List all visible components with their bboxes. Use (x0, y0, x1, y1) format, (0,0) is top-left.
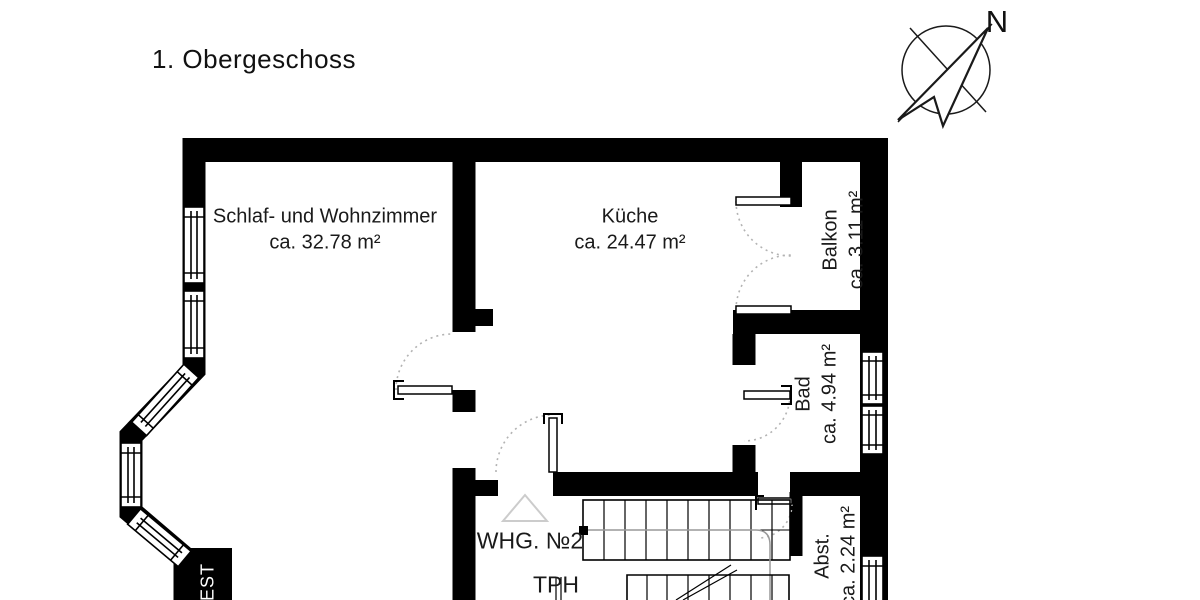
door-swing-icon (756, 496, 792, 538)
door-swing-icon (744, 386, 791, 441)
door-swing-icon (496, 414, 562, 472)
room-name: Abst. (811, 533, 833, 579)
stair-break-line (676, 565, 737, 600)
room-name: Bad (792, 376, 814, 412)
staircase (556, 500, 790, 600)
room-area: ca. 3.11 m² (844, 191, 870, 290)
window-icon (184, 207, 204, 283)
window-icon (862, 406, 883, 454)
entrance-triangle-icon (503, 495, 547, 521)
window-icon (132, 364, 199, 435)
room-area: ca. 32.78 m² (213, 230, 437, 256)
door-swing-icon (394, 334, 452, 399)
north-label: N (986, 4, 1008, 40)
window-icon (862, 556, 883, 600)
room-area: ca. 24.47 m² (574, 230, 685, 256)
room-label-kitchen: Küche ca. 24.47 m² (574, 204, 685, 255)
floor-plan-drawing (0, 0, 1200, 600)
window-icon (862, 352, 883, 404)
room-label-living-room: Schlaf- und Wohnzimmer ca. 32.78 m² (213, 204, 437, 255)
window-icon (121, 443, 141, 507)
room-label-balcony: Balkon ca. 3.11 m² (818, 191, 869, 290)
room-name: Schlaf- und Wohnzimmer (213, 205, 437, 227)
unit-label: WHG. №2 (477, 526, 583, 555)
room-area: ca. 2.24 m² (836, 506, 862, 600)
wall-label-nest: NEST (196, 563, 219, 600)
window-icon (128, 509, 191, 567)
room-name: Küche (602, 205, 659, 227)
room-label-storage: Abst. ca. 2.24 m² (810, 506, 861, 600)
room-name: Balkon (819, 209, 841, 270)
compass-icon (898, 24, 992, 126)
room-label-bathroom: Bad ca. 4.94 m² (791, 344, 842, 444)
floor-plan-page: 1. Obergeschoss N Schlaf- und Wohnzimmer… (0, 0, 1200, 600)
window-icon (184, 291, 204, 358)
page-title: 1. Obergeschoss (152, 44, 356, 75)
stair-walk-line (588, 530, 770, 600)
room-area: ca. 4.94 m² (817, 344, 843, 444)
door-swing-icon (736, 197, 791, 314)
room-label-stairwell: TPH (533, 570, 579, 599)
